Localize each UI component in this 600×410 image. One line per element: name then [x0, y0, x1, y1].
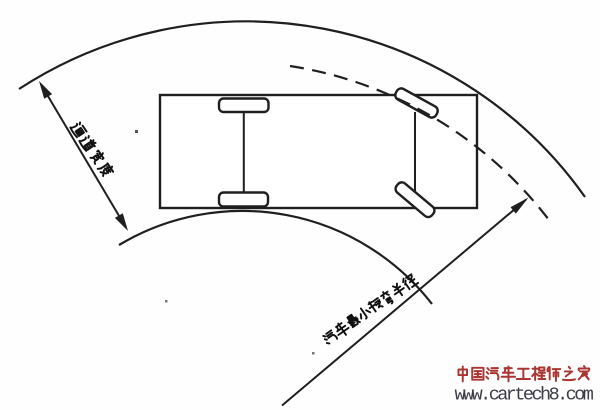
svg-text:www.cartech8.com: www.cartech8.com: [455, 385, 594, 406]
